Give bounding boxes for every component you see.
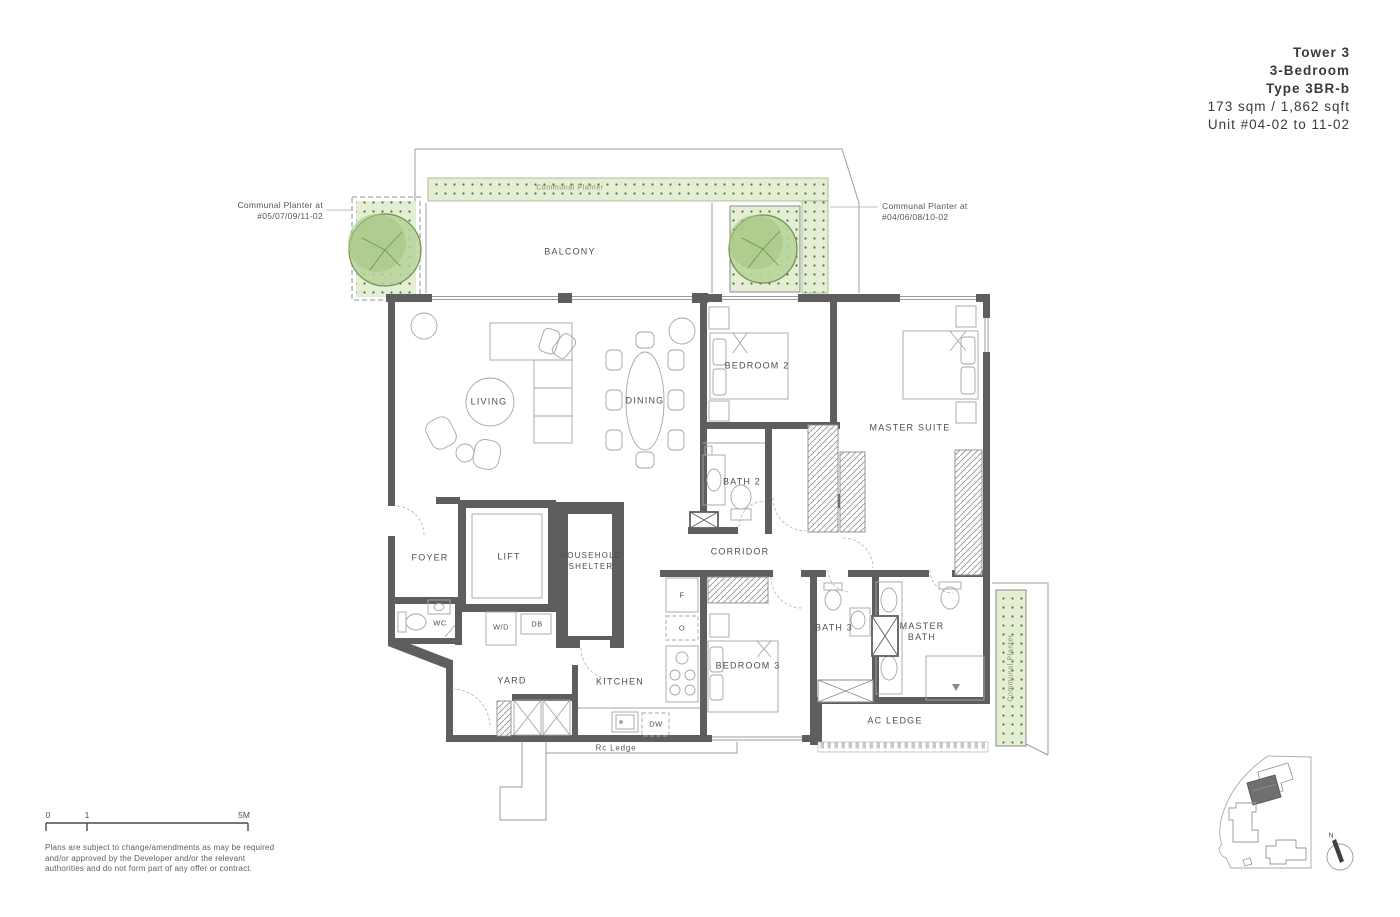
label-communal-planter-top: Communal Planter: [536, 183, 604, 194]
scale-bar: [46, 823, 248, 831]
tower-title: Tower 3: [1208, 44, 1350, 62]
label-fridge: F: [679, 590, 684, 601]
disclaimer-text: Plans are subject to change/amendments a…: [45, 843, 274, 875]
planter-annotation-left: Communal Planter at #05/07/09/11-02: [237, 200, 323, 222]
label-yard: YARD: [497, 676, 526, 687]
label-dishwasher: DW: [649, 719, 663, 730]
label-bedroom2: BEDROOM 2: [725, 361, 790, 372]
label-bedroom3: BEDROOM 3: [716, 661, 781, 672]
label-washer-dryer: W/D: [493, 622, 509, 633]
label-household-shelter: HOUSEHOLD SHELTER: [560, 550, 621, 572]
scale-end: 5M: [238, 810, 250, 820]
label-living: LIVING: [471, 397, 508, 408]
scale-mid: 1: [85, 810, 90, 820]
planter-annotation-right: Communal Planter at #04/06/08/10-02: [882, 201, 968, 223]
north-arrow-icon: [1327, 839, 1353, 870]
label-bath3: BATH 3: [815, 623, 853, 634]
unit-type: Type 3BR-b: [1208, 80, 1350, 98]
label-kitchen: KITCHEN: [596, 677, 644, 688]
label-foyer: FOYER: [411, 553, 448, 564]
unit-area: 173 sqm / 1,862 sqft: [1208, 98, 1350, 116]
unit-numbers: Unit #04-02 to 11-02: [1208, 116, 1350, 134]
tree-icon-left: [348, 214, 421, 286]
label-dining: DINING: [626, 396, 665, 407]
label-db: DB: [531, 619, 542, 630]
label-oven: O: [679, 623, 685, 634]
label-lift: LIFT: [497, 552, 520, 563]
label-corridor: CORRIDOR: [711, 547, 770, 558]
north-label: N: [1328, 833, 1333, 840]
bedroom-type: 3-Bedroom: [1208, 62, 1350, 80]
label-rc-ledge: Rc Ledge: [596, 743, 637, 754]
tree-icon-right: [729, 215, 797, 283]
scale-start: 0: [46, 810, 51, 820]
lift-shelter-interiors: [466, 508, 612, 636]
site-key-plan: [1219, 756, 1311, 868]
label-wc: WC: [433, 618, 447, 629]
ledges: [500, 742, 988, 820]
label-communal-planter-side: Communal Planter: [1006, 634, 1017, 702]
label-master-suite: MASTER SUITE: [870, 423, 951, 434]
title-block: Tower 3 3-Bedroom Type 3BR-b 173 sqm / 1…: [1208, 44, 1350, 134]
label-ac-ledge: AC LEDGE: [867, 716, 922, 727]
floor-plan-page: Tower 3 3-Bedroom Type 3BR-b 173 sqm / 1…: [0, 0, 1400, 917]
label-bath2: BATH 2: [723, 477, 761, 488]
floor-plan-graphic: [0, 0, 1400, 917]
label-master-bath: MASTER BATH: [900, 621, 945, 643]
label-balcony: BALCONY: [544, 247, 595, 258]
